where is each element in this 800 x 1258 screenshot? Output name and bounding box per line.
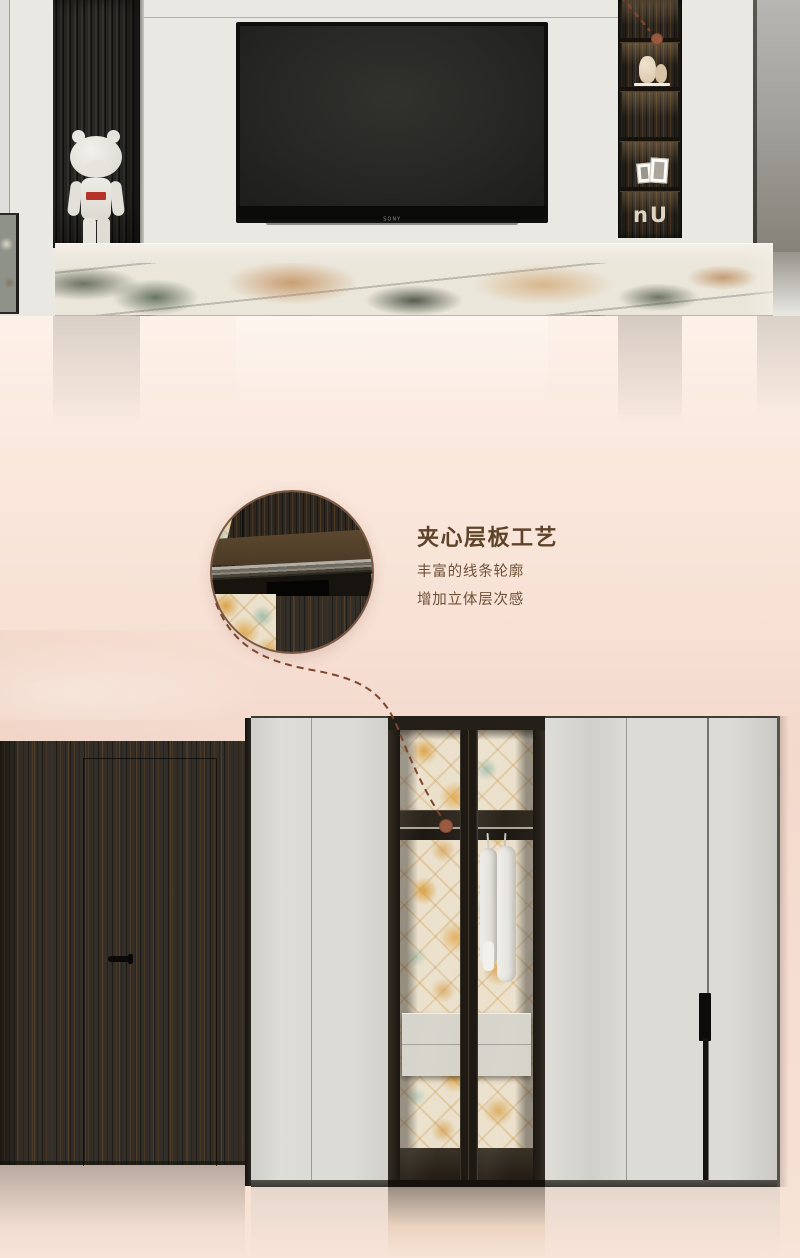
wardrobe-handle-grip (699, 993, 711, 1041)
bear-arm-right (109, 180, 125, 216)
slat-panel-edge (140, 0, 144, 248)
glass-frame-left-stile (388, 716, 400, 1187)
marble-counter-top (55, 243, 773, 265)
wall-corner-shade (0, 741, 22, 1165)
callout-subtitle-line1: 丰富的线条轮廓 (417, 558, 524, 586)
tv-stand-shadow (266, 221, 518, 225)
glass-frame-top-rail (388, 716, 545, 730)
marketing-page: Supreme SONY (0, 0, 800, 1258)
door-seam-1 (311, 718, 312, 1187)
wall-seam-line (9, 0, 10, 213)
door-seam-2 (626, 718, 627, 1187)
tv-wall-scene: Supreme SONY (0, 0, 800, 316)
floor-reflection-wall (0, 1165, 245, 1258)
marble-counter-face (55, 263, 773, 316)
floor-reflection-glass (388, 1187, 545, 1258)
wardrobe-handle-bar (703, 1038, 708, 1185)
bear-snout (84, 160, 110, 177)
streak-slat-reflection (53, 316, 140, 426)
supreme-logo-patch: Supreme (86, 192, 106, 200)
niche-glow-3 (622, 92, 678, 126)
glass-display-section (388, 716, 545, 1187)
streak-tv-reflection (236, 316, 548, 416)
streak-sidewall-reflection (757, 316, 800, 416)
callout-subtitle: 丰富的线条轮廓 增加立体层次感 (417, 558, 524, 614)
marble-right-end (745, 246, 773, 315)
decor-vase-large (639, 56, 656, 83)
display-niche: nU (618, 0, 682, 238)
hidden-door-outline (83, 758, 217, 1166)
detail-wallpaper-lower (212, 594, 276, 652)
dark-wood-wall (0, 741, 245, 1165)
tv-bottom-bezel: SONY (238, 206, 546, 219)
floor-reflections (0, 1165, 800, 1258)
detail-zoom-circle (210, 490, 374, 654)
streak-niche-reflection (618, 316, 682, 426)
center-stile-gap (468, 716, 469, 1187)
wardrobe-right-cast-shadow (780, 716, 789, 1187)
decor-letter-objects: nU (631, 203, 671, 233)
glass-frame-right-stile (533, 716, 545, 1187)
detail-door-front (276, 596, 372, 652)
door-handle-mount (128, 954, 133, 964)
tv-screen (240, 26, 544, 206)
tv: SONY (236, 22, 548, 223)
decor-shelf-board (634, 83, 670, 86)
reflection-streaks (0, 316, 800, 436)
decor-photo-frame-large (649, 157, 669, 183)
wall-artwork-frame (0, 213, 19, 314)
callout-subtitle-line2: 增加立体层次感 (417, 586, 524, 614)
glass-sheen-left (400, 730, 460, 1180)
callout-title: 夹心层板工艺 (417, 520, 558, 552)
side-wall-right (757, 0, 800, 252)
wall-seam-horizontal (140, 17, 618, 18)
decor-vase-small (655, 64, 667, 83)
glass-sheen-right (476, 730, 533, 1180)
niche-glow-1 (622, 0, 678, 36)
